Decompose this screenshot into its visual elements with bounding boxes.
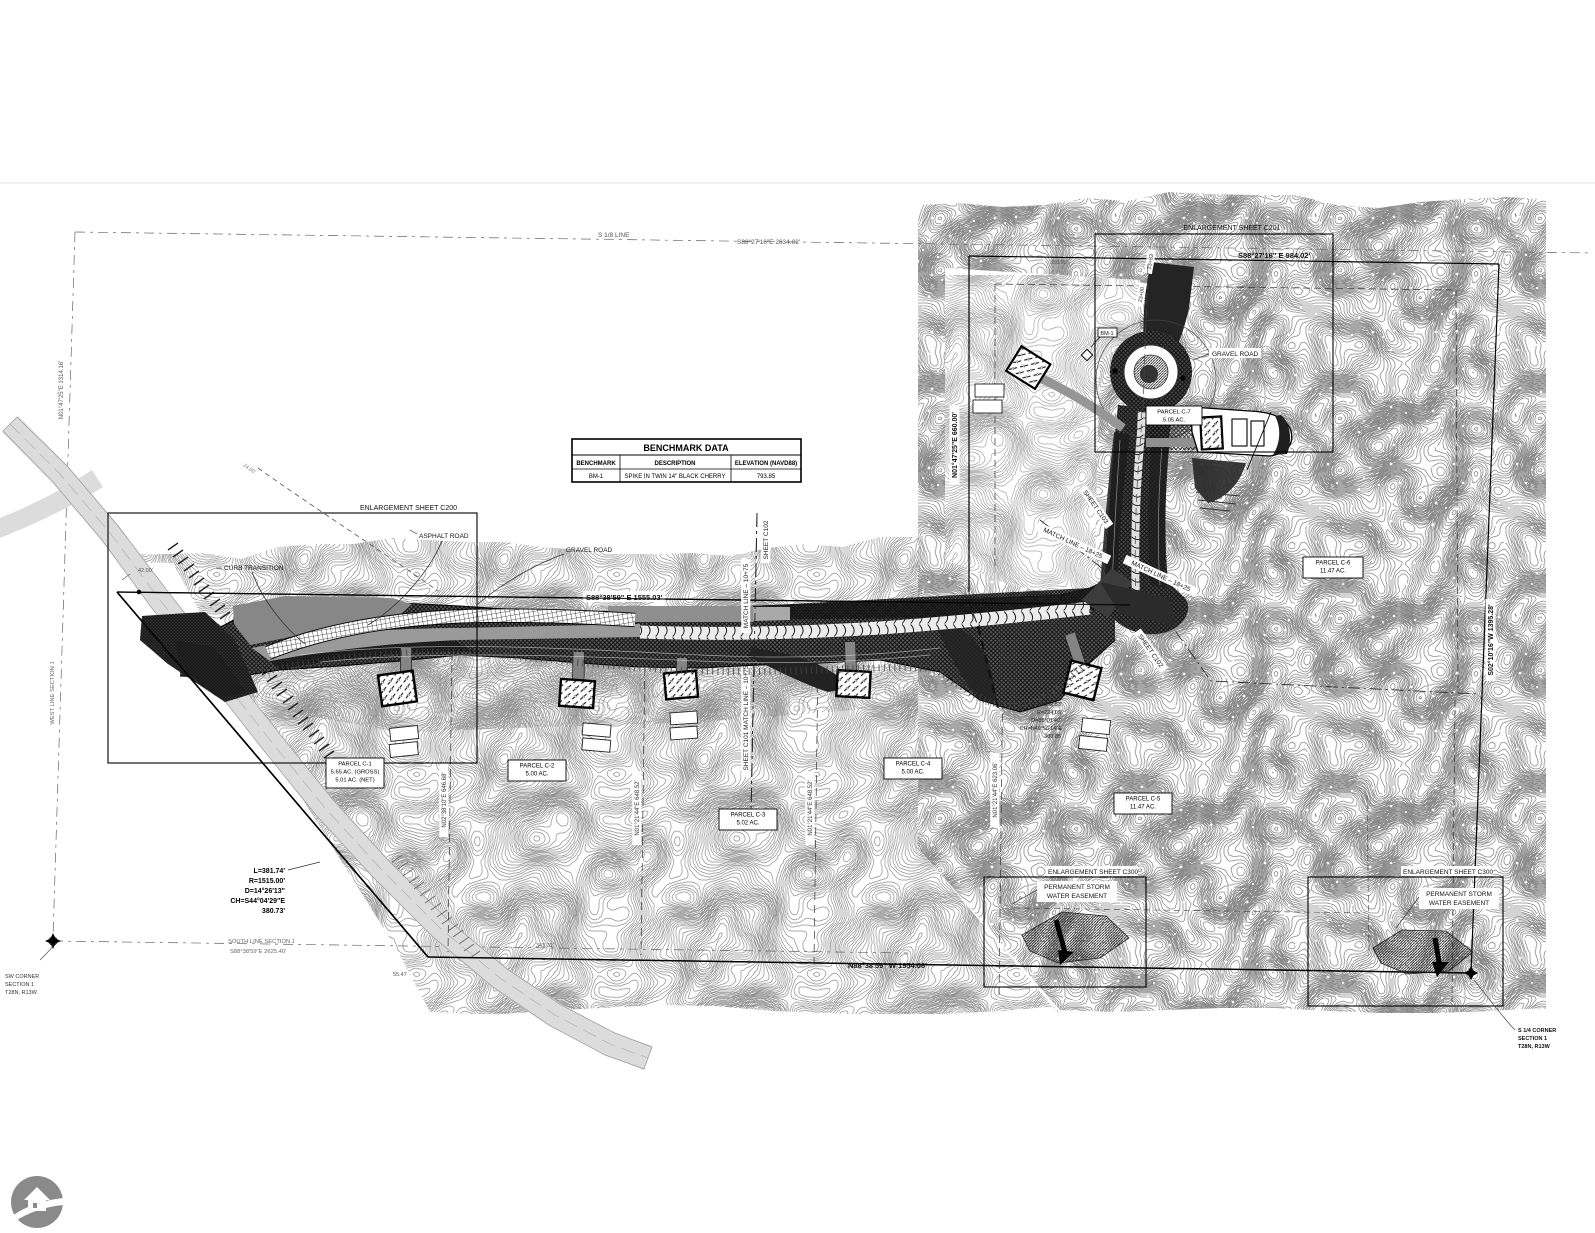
svg-text:SPIKE IN TWIN 14" BLACK CHERRY: SPIKE IN TWIN 14" BLACK CHERRY <box>625 474 726 480</box>
svg-text:5.01 AC. (NET): 5.01 AC. (NET) <box>335 777 374 783</box>
svg-text:T28N, R13W: T28N, R13W <box>1518 1044 1551 1050</box>
svg-text:N01°47'25"E 1314.16': N01°47'25"E 1314.16' <box>59 361 65 420</box>
svg-text:S88°27'16" E 984.02': S88°27'16" E 984.02' <box>1238 251 1310 260</box>
svg-text:ELEVATION (NAVD88): ELEVATION (NAVD88) <box>735 461 797 467</box>
svg-text:WEST LINE SECTION 1: WEST LINE SECTION 1 <box>50 661 56 724</box>
svg-text:WATER EASEMENT: WATER EASEMENT <box>1047 893 1107 900</box>
svg-text:PARCEL C-3: PARCEL C-3 <box>731 813 766 819</box>
svg-text:S02°10'16"W 1395.28': S02°10'16"W 1395.28' <box>1487 604 1495 676</box>
svg-text:R=224.09': R=224.09' <box>1037 710 1062 716</box>
svg-text:ENLARGEMENT SHEET C300: ENLARGEMENT SHEET C300 <box>1403 869 1493 876</box>
svg-text:11.47 AC.: 11.47 AC. <box>1130 805 1156 811</box>
svg-text:CH=S44°04'29"E: CH=S44°04'29"E <box>230 897 285 905</box>
svg-text:793.85: 793.85 <box>757 474 776 480</box>
svg-text:PERMANENT STORM: PERMANENT STORM <box>1426 891 1492 898</box>
svg-text:S88°27'16"E 2634.02': S88°27'16"E 2634.02' <box>737 238 800 246</box>
svg-text:SECTION 1: SECTION 1 <box>1518 1036 1547 1042</box>
svg-text:300.85': 300.85' <box>1044 734 1062 740</box>
svg-text:DESCRIPTION: DESCRIPTION <box>654 461 695 467</box>
svg-text:PARCEL C-4: PARCEL C-4 <box>896 762 931 768</box>
svg-text:BENCHMARK DATA: BENCHMARK DATA <box>643 443 729 453</box>
svg-text:L=381.74': L=381.74' <box>254 868 286 875</box>
svg-text:N88°38'59" W 1954.08': N88°38'59" W 1954.08' <box>848 961 927 970</box>
svg-text:55.47: 55.47 <box>393 972 407 978</box>
svg-text:PARCEL C-6: PARCEL C-6 <box>1316 561 1351 567</box>
svg-text:ENLARGEMENT SHEET C200: ENLARGEMENT SHEET C200 <box>360 505 457 512</box>
svg-text:ENLARGEMENT SHEET C300: ENLARGEMENT SHEET C300 <box>1048 869 1138 876</box>
svg-text:5.65 AC. (GROSS): 5.65 AC. (GROSS) <box>331 769 380 775</box>
svg-text:GRAVEL ROAD: GRAVEL ROAD <box>566 547 613 554</box>
svg-text:MATCH LINE – 10+75: MATCH LINE – 10+75 <box>743 563 750 628</box>
svg-text:SOUTH LINE SECTION 1: SOUTH LINE SECTION 1 <box>228 939 295 945</box>
svg-text:GRAVEL ROAD: GRAVEL ROAD <box>1212 351 1259 358</box>
svg-text:L=332.53': L=332.53' <box>1038 702 1062 708</box>
svg-text:S 1/8 LINE: S 1/8 LINE <box>598 232 630 239</box>
svg-text:SW CORNER: SW CORNER <box>5 974 39 980</box>
svg-text:SHEET C101 MATCH LINE – 10+75: SHEET C101 MATCH LINE – 10+75 <box>743 665 750 770</box>
svg-text:N01°21'44"E 623.06': N01°21'44"E 623.06' <box>993 762 999 817</box>
svg-text:D=85°01'40": D=85°01'40" <box>1031 718 1062 724</box>
svg-text:343.31': 343.31' <box>536 943 554 949</box>
svg-text:380.73': 380.73' <box>262 908 285 915</box>
svg-text:N01°47'25"E 660.00': N01°47'25"E 660.00' <box>951 412 959 478</box>
svg-text:N02°38'10"E 646.68': N02°38'10"E 646.68' <box>442 772 448 827</box>
svg-text:PARCEL C-2: PARCEL C-2 <box>520 764 555 770</box>
svg-text:SHEET C102: SHEET C102 <box>763 520 770 559</box>
svg-text:CURB TRANSITION: CURB TRANSITION <box>224 565 284 572</box>
svg-text:BM-1: BM-1 <box>1100 331 1113 337</box>
svg-text:N01°21'44"E 648.52': N01°21'44"E 648.52' <box>808 780 814 835</box>
svg-text:5.02 AC.: 5.02 AC. <box>736 821 759 827</box>
svg-text:ASPHALT ROAD: ASPHALT ROAD <box>419 533 469 540</box>
svg-text:PARCEL C-7: PARCEL C-7 <box>1157 409 1191 415</box>
svg-text:S88°38'59"E 2625.40': S88°38'59"E 2625.40' <box>230 949 286 955</box>
svg-text:42.00': 42.00' <box>138 568 153 574</box>
svg-text:11.47 AC.: 11.47 AC. <box>1320 569 1346 575</box>
svg-text:D=14°26'13": D=14°26'13" <box>245 887 285 895</box>
svg-text:PARCEL C-5: PARCEL C-5 <box>1126 797 1161 803</box>
svg-text:5.05 AC.: 5.05 AC. <box>1163 417 1186 423</box>
svg-text:5.00 AC.: 5.00 AC. <box>901 770 924 776</box>
svg-text:PARCEL C-1: PARCEL C-1 <box>338 761 372 767</box>
svg-text:CH=N49°56'14"E: CH=N49°56'14"E <box>1020 726 1063 732</box>
svg-text:WATER EASEMENT: WATER EASEMENT <box>1429 900 1489 907</box>
svg-text:ENLARGEMENT SHEET C201: ENLARGEMENT SHEET C201 <box>1184 225 1281 232</box>
svg-text:BM-1: BM-1 <box>589 474 604 480</box>
svg-text:358.98': 358.98' <box>1050 260 1068 266</box>
svg-text:T28N, R13W: T28N, R13W <box>5 990 38 996</box>
svg-text:S 1/4 CORNER: S 1/4 CORNER <box>1518 1028 1556 1034</box>
svg-text:S88°38'59" E 1555.03': S88°38'59" E 1555.03' <box>586 593 663 602</box>
svg-text:N01°21'44"E 648.52': N01°21'44"E 648.52' <box>635 780 641 835</box>
svg-text:PERMANENT STORM: PERMANENT STORM <box>1044 884 1110 891</box>
svg-text:SECTION 1: SECTION 1 <box>5 982 34 988</box>
svg-text:R=1515.00': R=1515.00' <box>249 878 285 885</box>
svg-text:5.00 AC.: 5.00 AC. <box>525 772 548 778</box>
svg-text:BENCHMARK: BENCHMARK <box>576 461 616 467</box>
